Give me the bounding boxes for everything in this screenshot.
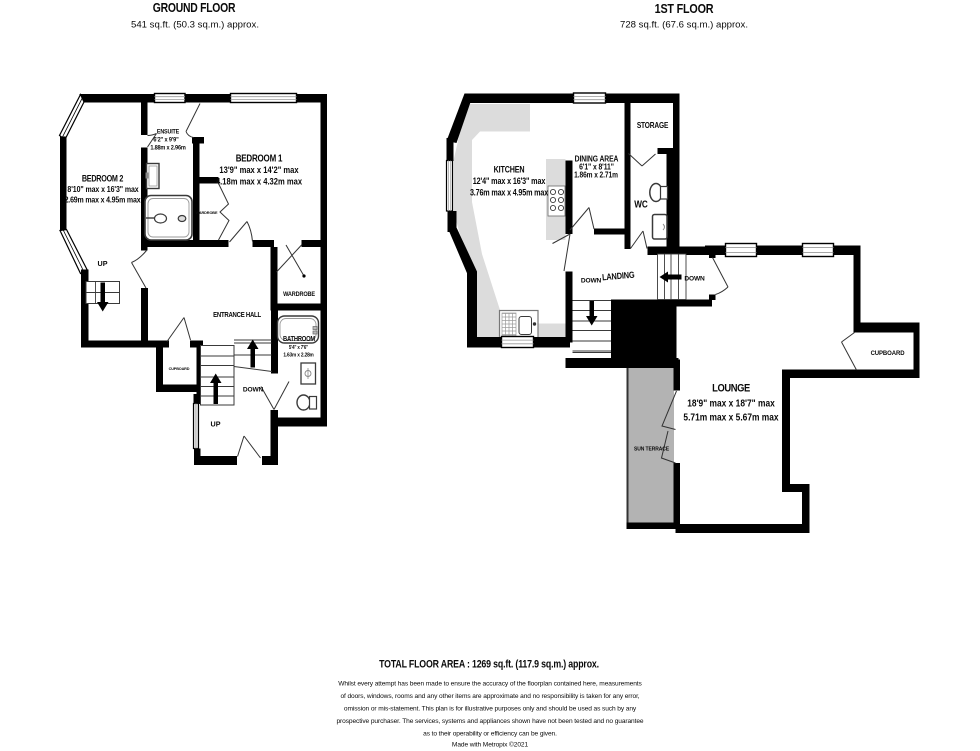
svg-text:WC: WC [634,199,648,210]
svg-text:1.63m x 2.28m: 1.63m x 2.28m [283,352,314,359]
svg-text:KITCHEN: KITCHEN [494,165,525,175]
svg-text:728 sq.ft. (67.6 sq.m.) approx: 728 sq.ft. (67.6 sq.m.) approx. [620,20,748,31]
svg-text:BEDROOM 2: BEDROOM 2 [82,174,124,184]
svg-text:5'4" x 7'6": 5'4" x 7'6" [289,344,308,351]
svg-text:ENSUITE: ENSUITE [157,129,179,136]
svg-text:1.88m x 2.96m: 1.88m x 2.96m [150,144,186,152]
svg-text:5.71m max x 5.67m max: 5.71m max x 5.67m max [683,412,779,423]
svg-text:13'9" max x 14'2" max: 13'9" max x 14'2" max [219,164,298,175]
svg-text:of doors, windows, rooms and a: of doors, windows, rooms and any other i… [340,693,639,700]
svg-text:SUN TERRACE: SUN TERRACE [634,447,670,453]
svg-text:WARDROBE: WARDROBE [283,291,315,299]
svg-text:6'2" x 9'9": 6'2" x 9'9" [153,136,178,144]
svg-text:as to their operability or eff: as to their operability or efficiency ca… [423,731,557,738]
svg-text:541 sq.ft. (50.3 sq.m.) approx: 541 sq.ft. (50.3 sq.m.) approx. [131,20,259,31]
svg-text:Made with Metropix ©2021: Made with Metropix ©2021 [452,741,529,749]
svg-text:DOWN: DOWN [581,278,602,285]
svg-text:STORAGE: STORAGE [637,120,669,130]
svg-text:Whilst every attempt has been: Whilst every attempt has been made to en… [338,681,642,688]
svg-text:1.86m x 2.71m: 1.86m x 2.71m [574,170,618,180]
svg-text:TOTAL FLOOR AREA : 1269 sq.ft.: TOTAL FLOOR AREA : 1269 sq.ft. (117.9 sq… [379,659,599,671]
svg-text:4.18m max x 4.32m max: 4.18m max x 4.32m max [216,176,302,187]
svg-text:3.76m max x 4.95m max: 3.76m max x 4.95m max [470,188,549,198]
svg-text:UP: UP [98,259,108,268]
svg-text:1ST FLOOR: 1ST FLOOR [655,1,714,16]
svg-text:8'10" max x 16'3" max: 8'10" max x 16'3" max [67,184,139,194]
svg-text:WARDROBE: WARDROBE [196,211,218,215]
svg-text:2.69m max x 4.95m max: 2.69m max x 4.95m max [65,195,142,205]
svg-text:DOWN: DOWN [243,387,264,394]
svg-text:BATHROOM: BATHROOM [283,336,315,344]
svg-text:prospective purchaser. The ser: prospective purchaser. The services, sys… [336,718,643,725]
svg-text:18'9" max x 18'7" max: 18'9" max x 18'7" max [687,398,775,409]
svg-text:GROUND FLOOR: GROUND FLOOR [153,2,236,15]
svg-text:ENTRANCE HALL: ENTRANCE HALL [213,312,261,320]
svg-text:LOUNGE: LOUNGE [712,383,750,395]
svg-text:12'4" max x 16'3" max: 12'4" max x 16'3" max [473,176,546,186]
svg-text:CUPBOARD: CUPBOARD [169,367,190,371]
svg-text:DOWN: DOWN [684,276,705,283]
svg-text:CUPBOARD: CUPBOARD [871,351,906,357]
svg-text:omission or mis-statement. Thi: omission or mis-statement. This plan is … [344,706,637,713]
svg-text:UP: UP [211,420,221,429]
svg-text:BEDROOM 1: BEDROOM 1 [236,153,283,164]
